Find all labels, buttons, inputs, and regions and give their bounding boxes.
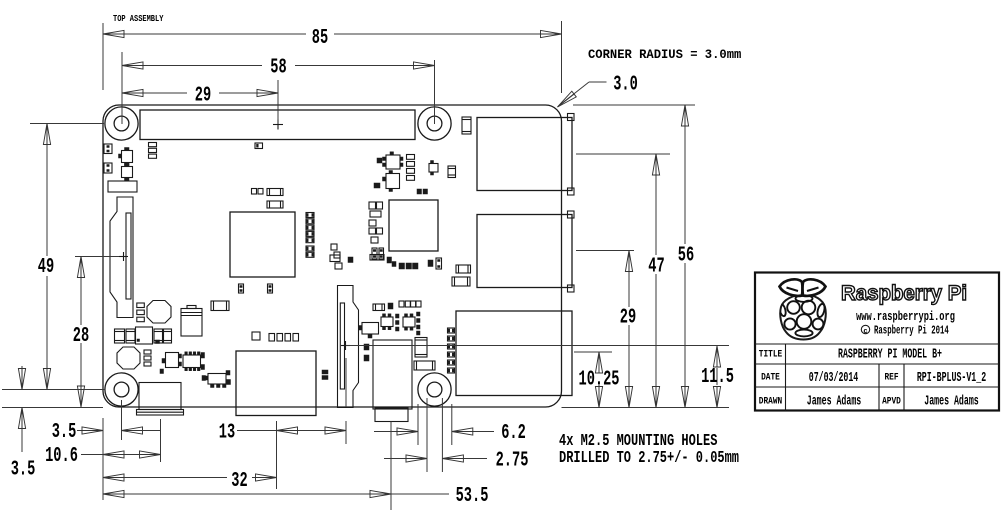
svg-text:58: 58 (270, 57, 286, 80)
svg-text:56: 56 (678, 245, 694, 268)
svg-text:53.5: 53.5 (456, 485, 489, 508)
svg-text:47: 47 (648, 256, 664, 279)
svg-text:c: c (863, 328, 867, 336)
svg-text:James Adams: James Adams (807, 394, 862, 410)
svg-text:28: 28 (73, 325, 89, 348)
svg-text:10.25: 10.25 (579, 369, 620, 392)
svg-text:James Adams: James Adams (924, 394, 979, 410)
svg-text:29: 29 (620, 307, 636, 330)
svg-text:3.0: 3.0 (613, 74, 638, 97)
svg-text:6.2: 6.2 (501, 422, 526, 445)
svg-text:10.6: 10.6 (45, 445, 78, 468)
svg-text:49: 49 (38, 256, 54, 279)
svg-text:3.5: 3.5 (11, 459, 36, 482)
svg-text:2.75: 2.75 (496, 450, 529, 473)
svg-text:Raspberry Pi: Raspberry Pi (841, 282, 967, 305)
svg-text:3.5: 3.5 (52, 421, 77, 444)
svg-text:REF: REF (884, 372, 898, 384)
svg-text:DATE: DATE (761, 372, 780, 384)
svg-text:TITLE: TITLE (759, 349, 783, 361)
svg-text:DRAWN: DRAWN (759, 396, 783, 408)
svg-text:11.5: 11.5 (701, 366, 734, 389)
svg-text:RPI-BPLUS-V1_2: RPI-BPLUS-V1_2 (917, 370, 986, 386)
svg-text:Raspberry Pi 2014: Raspberry Pi 2014 (874, 324, 949, 338)
svg-text:07/03/2014: 07/03/2014 (809, 370, 859, 386)
svg-text:13: 13 (219, 422, 235, 445)
svg-text:RASPBERRY PI MODEL B+: RASPBERRY PI MODEL B+ (838, 347, 942, 363)
svg-text:CORNER RADIUS = 3.0mm: CORNER RADIUS = 3.0mm (588, 47, 741, 62)
svg-text:www.raspberrypi.org: www.raspberrypi.org (856, 309, 955, 324)
svg-text:29: 29 (195, 85, 211, 108)
svg-text:APVD: APVD (882, 396, 901, 408)
svg-text:DRILLED TO 2.75+/- 0.05mm: DRILLED TO 2.75+/- 0.05mm (559, 449, 739, 468)
svg-text:32: 32 (231, 470, 247, 493)
svg-text:TOP ASSEMBLY: TOP ASSEMBLY (113, 13, 164, 24)
svg-text:85: 85 (312, 27, 328, 50)
